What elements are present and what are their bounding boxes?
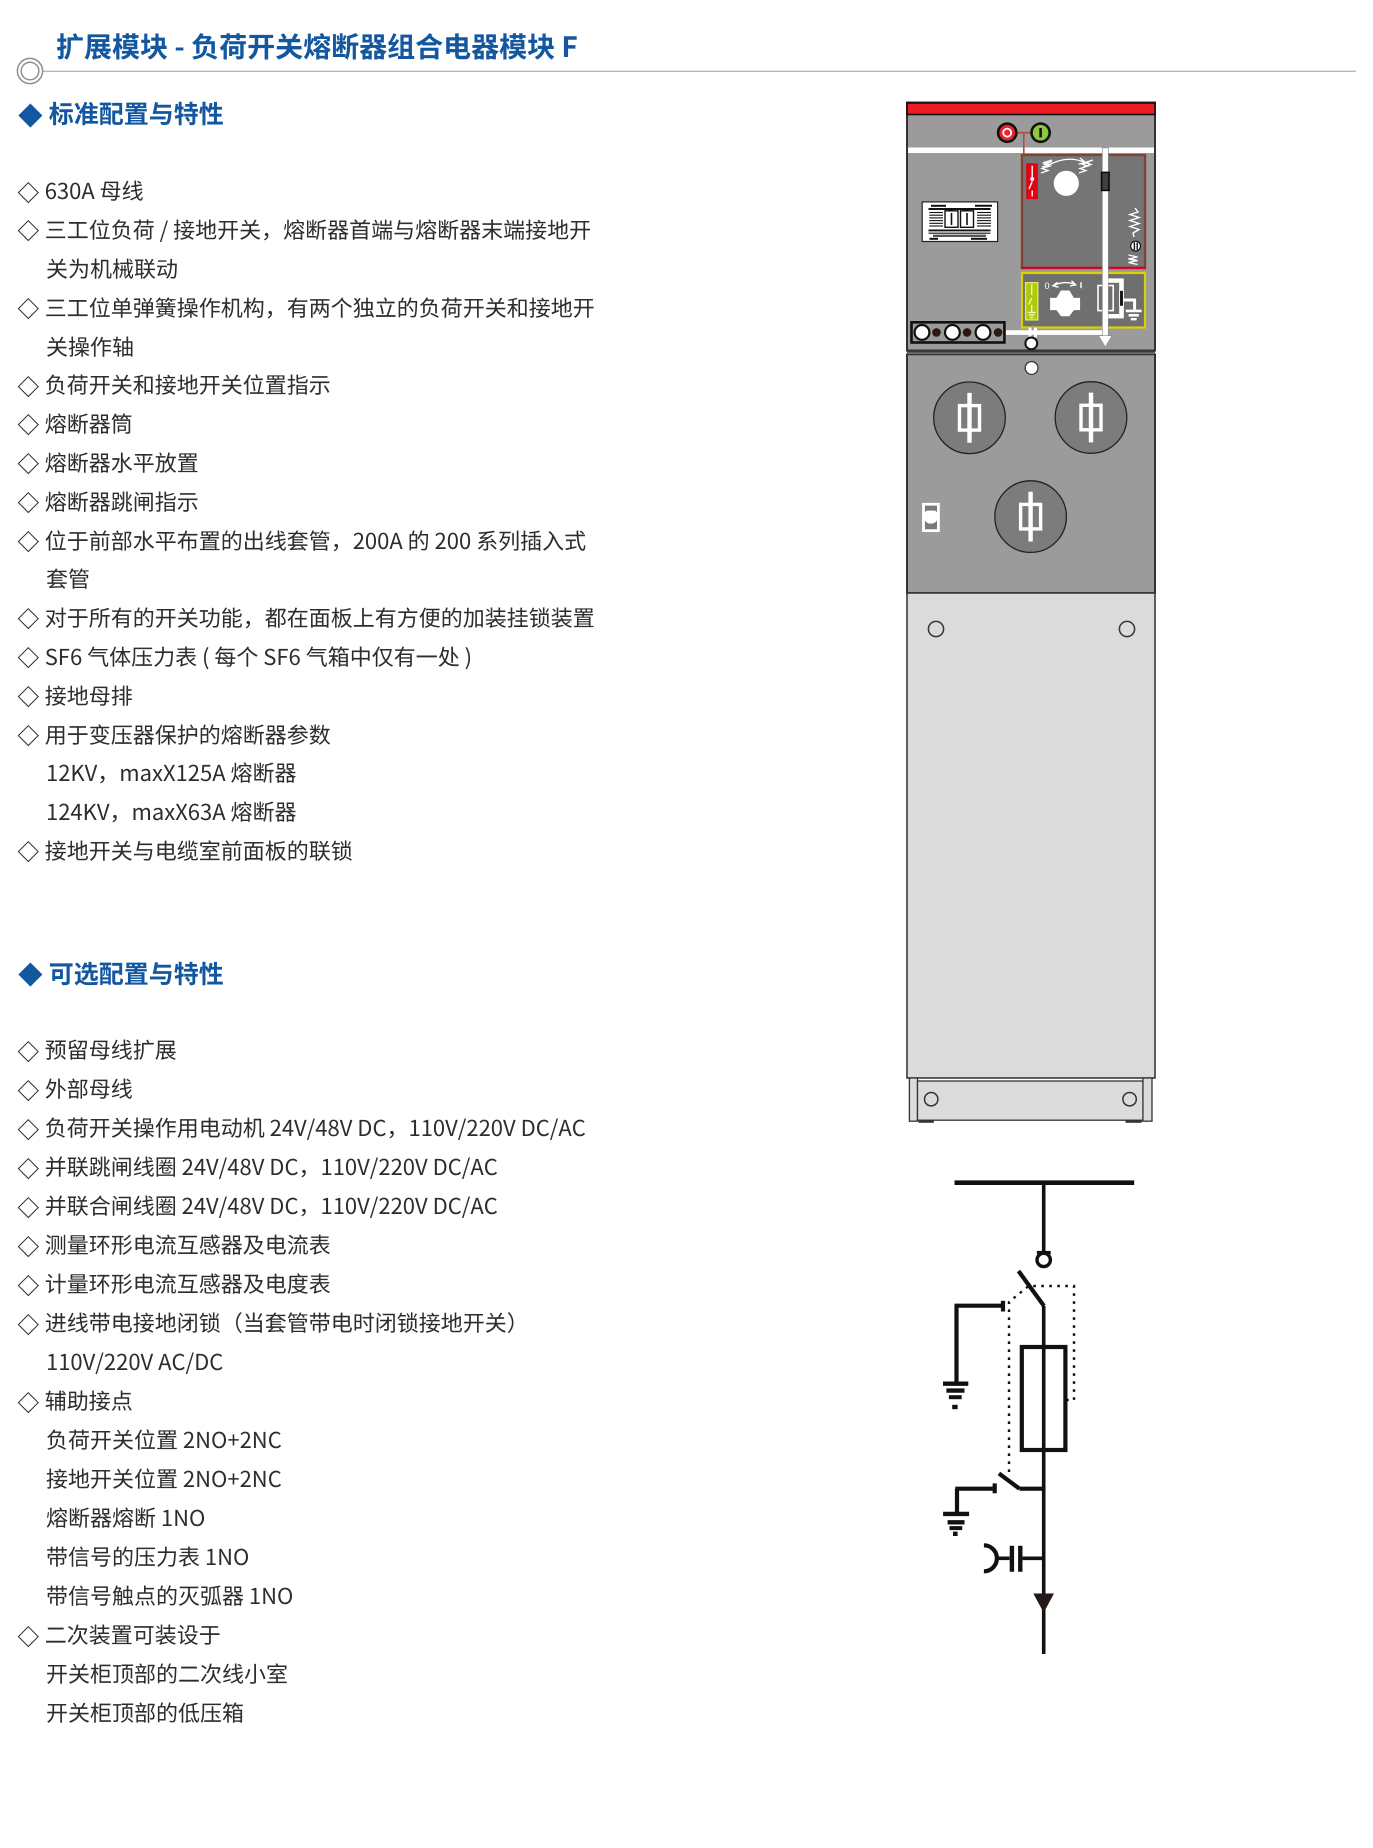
svg-text:0: 0 bbox=[1045, 281, 1050, 291]
